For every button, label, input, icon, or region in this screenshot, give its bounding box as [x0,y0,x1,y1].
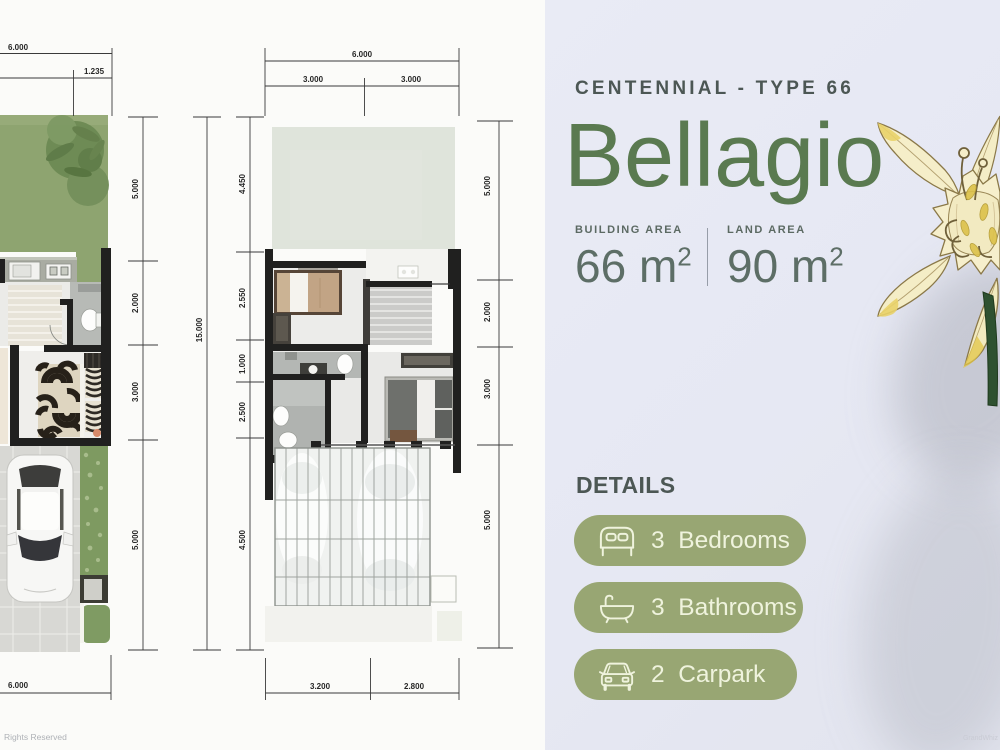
svg-text:5.000: 5.000 [131,178,140,199]
svg-text:6.000: 6.000 [8,43,29,52]
svg-text:1.000: 1.000 [238,353,247,374]
svg-text:3.000: 3.000 [131,381,140,402]
svg-text:1.235: 1.235 [84,67,105,76]
svg-text:2.500: 2.500 [238,401,247,422]
svg-text:5.000: 5.000 [483,175,492,196]
svg-text:6.000: 6.000 [352,50,373,59]
svg-text:15.000: 15.000 [195,317,204,342]
svg-text:3.000: 3.000 [303,75,324,84]
svg-text:2.000: 2.000 [483,301,492,322]
svg-text:2.550: 2.550 [238,287,247,308]
svg-text:5.000: 5.000 [483,509,492,530]
svg-text:3.000: 3.000 [401,75,422,84]
svg-text:2.800: 2.800 [404,682,425,691]
svg-text:6.000: 6.000 [8,681,29,690]
svg-text:4.450: 4.450 [238,173,247,194]
svg-text:3.000: 3.000 [483,378,492,399]
svg-text:4.500: 4.500 [238,529,247,550]
svg-text:5.000: 5.000 [131,529,140,550]
svg-text:2.000: 2.000 [131,292,140,313]
svg-text:3.200: 3.200 [310,682,331,691]
